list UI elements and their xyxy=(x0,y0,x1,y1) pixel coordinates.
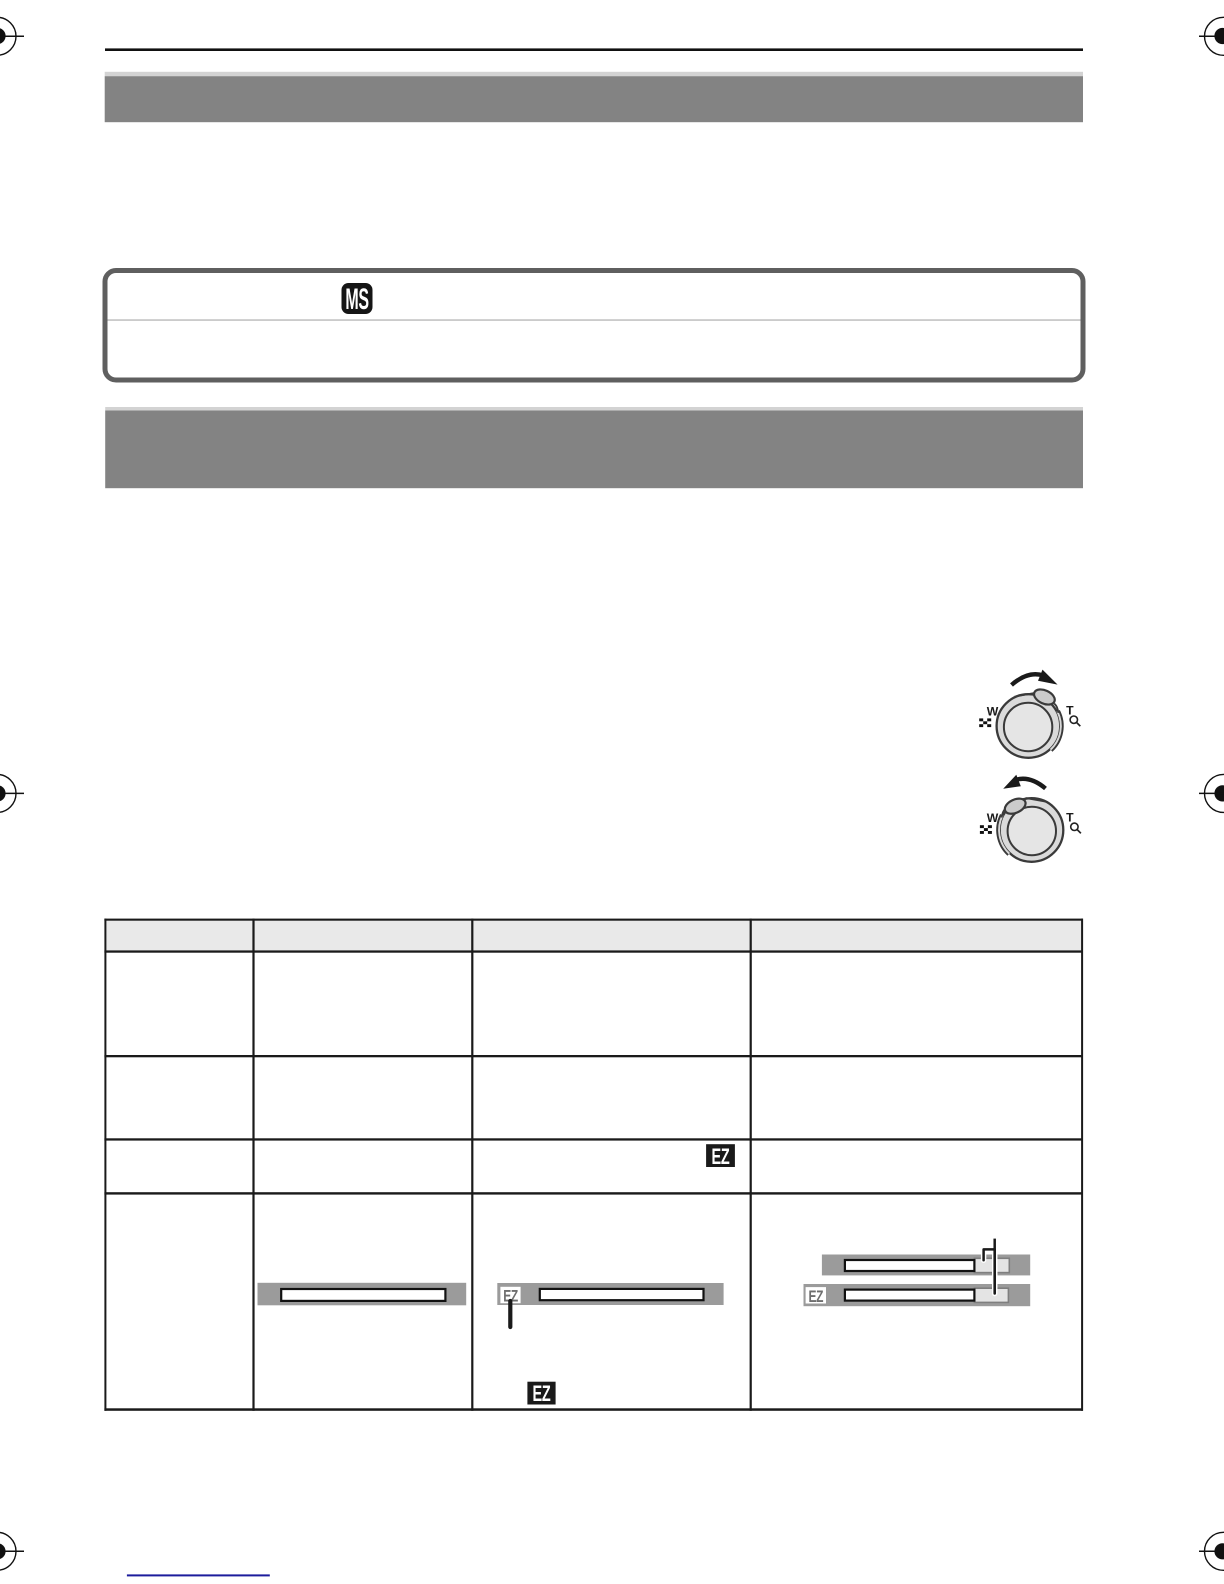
svg-text:T: T xyxy=(1066,810,1074,824)
svg-text:EZ: EZ xyxy=(533,1381,551,1406)
svg-text:EZ: EZ xyxy=(712,1144,730,1169)
svg-text:EZ: EZ xyxy=(809,1288,824,1306)
svg-text:MS: MS xyxy=(345,283,369,317)
svg-text:W: W xyxy=(987,811,999,825)
svg-text:W: W xyxy=(987,704,999,718)
